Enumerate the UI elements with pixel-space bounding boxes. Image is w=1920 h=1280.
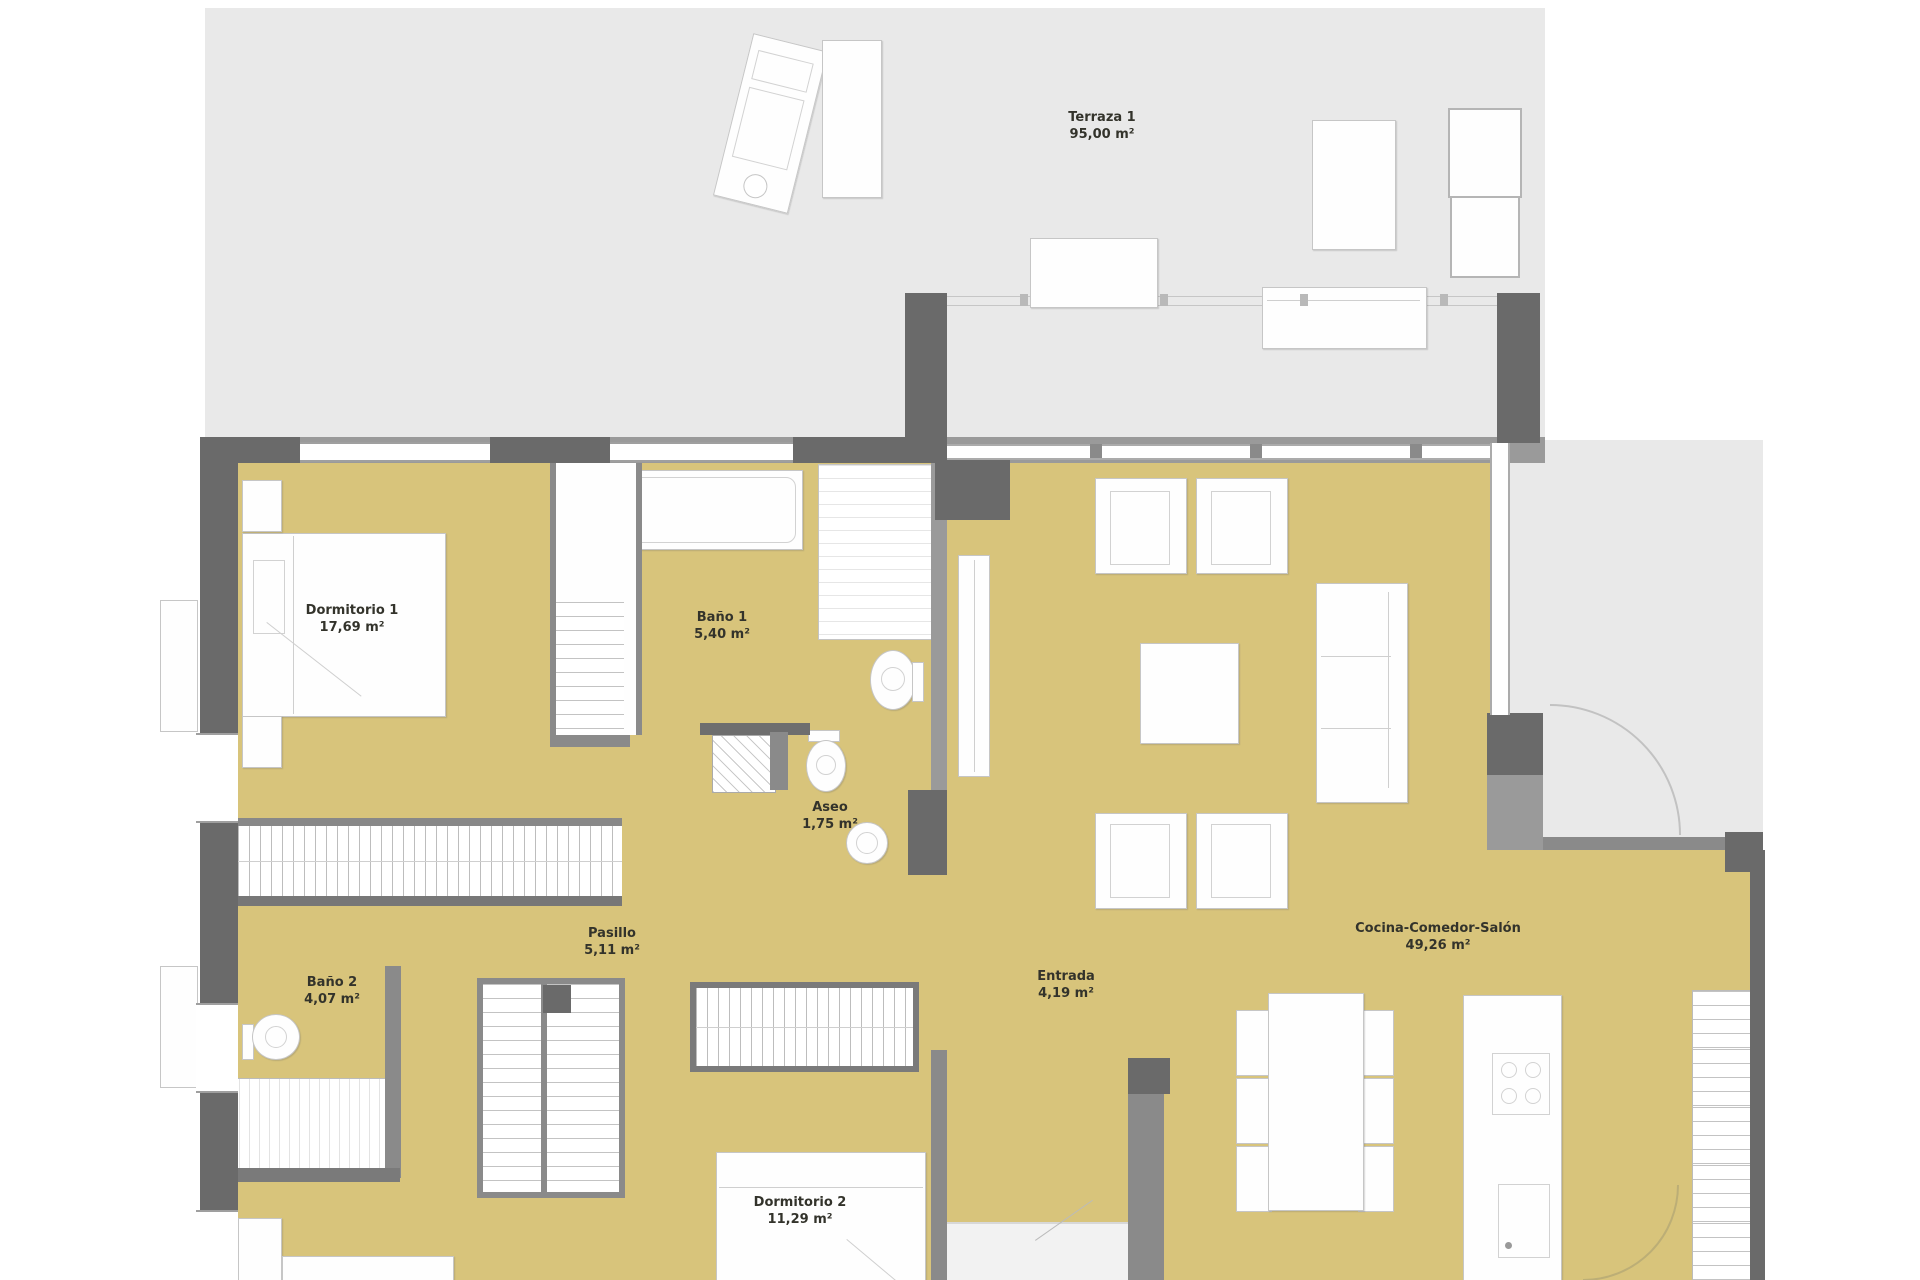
aseo-cabinet (712, 735, 776, 793)
wardrobe-dormitorio1 (238, 818, 622, 906)
glazing-mullion (1250, 444, 1262, 458)
living-right-glazing (1490, 443, 1510, 715)
sink-basin (856, 832, 878, 854)
room-label-pasillo: Pasillo 5,11 m² (584, 926, 640, 960)
kitchen-island (1463, 995, 1562, 1280)
closet-dormitorio1 (550, 462, 642, 735)
sun-lounger-headrest (751, 50, 814, 93)
kitchen-sink (1498, 1184, 1550, 1258)
bed-fold-line (846, 1239, 916, 1280)
sofa-cushion-line (1321, 656, 1391, 657)
left-wall (200, 437, 238, 1280)
wardrobe-rail-line (696, 1027, 913, 1028)
dining-chair (1236, 1078, 1272, 1144)
wardrobe-column (543, 985, 571, 1013)
dining-chair (1236, 1010, 1272, 1076)
closet-bottom-wall (550, 735, 630, 747)
burner (1525, 1062, 1541, 1078)
burner (1501, 1062, 1517, 1078)
room-name: Cocina-Comedor-Salón (1355, 921, 1521, 938)
shower-bano1 (818, 464, 938, 640)
terrace-storage-box-2 (1450, 196, 1520, 278)
living-corner-column (935, 458, 1010, 520)
window-sill-box (160, 600, 198, 732)
top-wall-column-1 (200, 437, 300, 463)
room-name: Aseo (802, 800, 858, 817)
room-name: Dormitorio 2 (754, 1195, 847, 1212)
bano1-terrace-window (610, 442, 793, 462)
room-label-entrada: Entrada 4,19 m² (1037, 969, 1095, 1003)
room-name: Baño 2 (304, 975, 360, 992)
terrace-table-tall (1312, 120, 1396, 250)
terrace-side-area (1506, 440, 1540, 715)
closet-shelves (556, 602, 624, 732)
tv-cabinet (958, 555, 990, 777)
room-area: 17,69 m² (306, 620, 399, 637)
burner (1525, 1088, 1541, 1104)
room-label-dormitorio2: Dormitorio 2 11,29 m² (754, 1195, 847, 1229)
dormitorio1-terrace-window (300, 442, 490, 462)
wardrobe-rail-line (238, 861, 622, 862)
room-label-bano2: Baño 2 4,07 m² (304, 975, 360, 1009)
railing-post (1020, 294, 1028, 306)
glazing-mullion (1410, 444, 1422, 458)
bench-back-line (1267, 300, 1420, 301)
wardrobe-dormitorio2 (690, 982, 919, 1072)
room-area: 95,00 m² (1068, 127, 1135, 144)
room-area: 4,07 m² (304, 992, 360, 1009)
room-area: 4,19 m² (1037, 986, 1095, 1003)
toilet-bowl (816, 755, 836, 775)
terrace-pier-left (905, 293, 947, 463)
room-area: 1,75 m² (802, 817, 858, 834)
toilet-tank (912, 662, 924, 702)
bed-sheet-line (293, 536, 294, 714)
armchair-seat (1110, 491, 1170, 565)
room-name: Dormitorio 1 (306, 603, 399, 620)
railing-post (1160, 294, 1168, 306)
aseo-left-wall (770, 732, 788, 790)
top-wall-column-2 (490, 437, 610, 463)
railing-post (1440, 294, 1448, 306)
toilet-bano2 (252, 1014, 300, 1060)
room-name: Pasillo (584, 926, 640, 943)
toilet-bowl (265, 1026, 287, 1048)
left-window-1 (196, 733, 238, 823)
terrace-outdoor-table (1030, 238, 1158, 308)
sun-lounger-wheel (741, 172, 770, 201)
nightstand (238, 1218, 282, 1280)
armchair-seat (1110, 824, 1170, 898)
room-area: 5,40 m² (694, 627, 750, 644)
shower-bano2 (228, 1078, 395, 1176)
armchair-seat (1211, 491, 1271, 565)
room-name: Entrada (1037, 969, 1095, 986)
sofa-cushion-line (1321, 728, 1391, 729)
window-sill-box (160, 966, 198, 1088)
terrace-side-table (822, 40, 882, 198)
room-name: Terraza 1 (1068, 110, 1135, 127)
terrace-storage-box-1 (1448, 108, 1522, 198)
left-window-3 (196, 1210, 238, 1280)
terrace-bench (1262, 287, 1427, 349)
room-area: 5,11 m² (584, 943, 640, 960)
coffee-table (1140, 643, 1239, 744)
tv-cabinet-line (974, 560, 975, 772)
dining-table (1268, 993, 1364, 1211)
toilet-bowl (881, 667, 905, 691)
burner (1501, 1088, 1517, 1104)
room-label-bano1: Baño 1 5,40 m² (694, 610, 750, 644)
sofa (1316, 583, 1408, 803)
bed-dormitorio3 (282, 1256, 454, 1280)
armchair-seat (1211, 824, 1271, 898)
bed-sheet-line (719, 1187, 923, 1188)
kitchen-counter-right (1692, 990, 1752, 1280)
cooktop (1492, 1053, 1550, 1115)
sofa-back (1388, 592, 1399, 788)
glazing-mullion (1090, 444, 1102, 458)
bano2-right-wall (385, 966, 401, 1178)
room-area: 11,29 m² (754, 1212, 847, 1229)
bano1-bottom-wall (700, 723, 810, 735)
room-label-dormitorio1: Dormitorio 1 17,69 m² (306, 603, 399, 637)
mid-wall-lower (931, 1050, 947, 1280)
armchair (1095, 813, 1187, 909)
railing-post (1300, 294, 1308, 306)
room-label-salon: Cocina-Comedor-Salón 49,26 m² (1355, 921, 1521, 955)
armchair (1095, 478, 1187, 574)
entrada-wall-column (1128, 1058, 1170, 1094)
toilet-bano1 (870, 650, 916, 710)
living-right-wall-lower (1487, 775, 1543, 850)
floor-plan: Terraza 1 95,00 m² Dormitorio 1 17,69 m²… (0, 0, 1920, 1280)
room-label-terraza: Terraza 1 95,00 m² (1068, 110, 1135, 144)
sun-lounger-seat (732, 87, 805, 171)
nightstand (242, 716, 282, 768)
mid-wall-block (908, 790, 947, 875)
terrace-right-area (1540, 440, 1763, 837)
armchair (1196, 478, 1288, 574)
wardrobe-divider (541, 984, 547, 1192)
room-area: 49,26 m² (1355, 938, 1521, 955)
bathtub (623, 470, 803, 550)
toilet-aseo (806, 740, 846, 792)
bathtub-basin (630, 477, 796, 543)
living-right-wall-block (1487, 713, 1543, 775)
armchair (1196, 813, 1288, 909)
nightstand (242, 480, 282, 532)
top-wall-column-3 (793, 437, 907, 463)
room-name: Baño 1 (694, 610, 750, 627)
dining-chair (1236, 1146, 1272, 1212)
room-label-aseo: Aseo 1,75 m² (802, 800, 858, 834)
right-wall (1750, 850, 1765, 1280)
sink-drain (1505, 1242, 1512, 1249)
left-window-2 (196, 1003, 238, 1093)
entrance-landing (947, 1222, 1128, 1280)
terrace-pier-right (1497, 293, 1540, 443)
